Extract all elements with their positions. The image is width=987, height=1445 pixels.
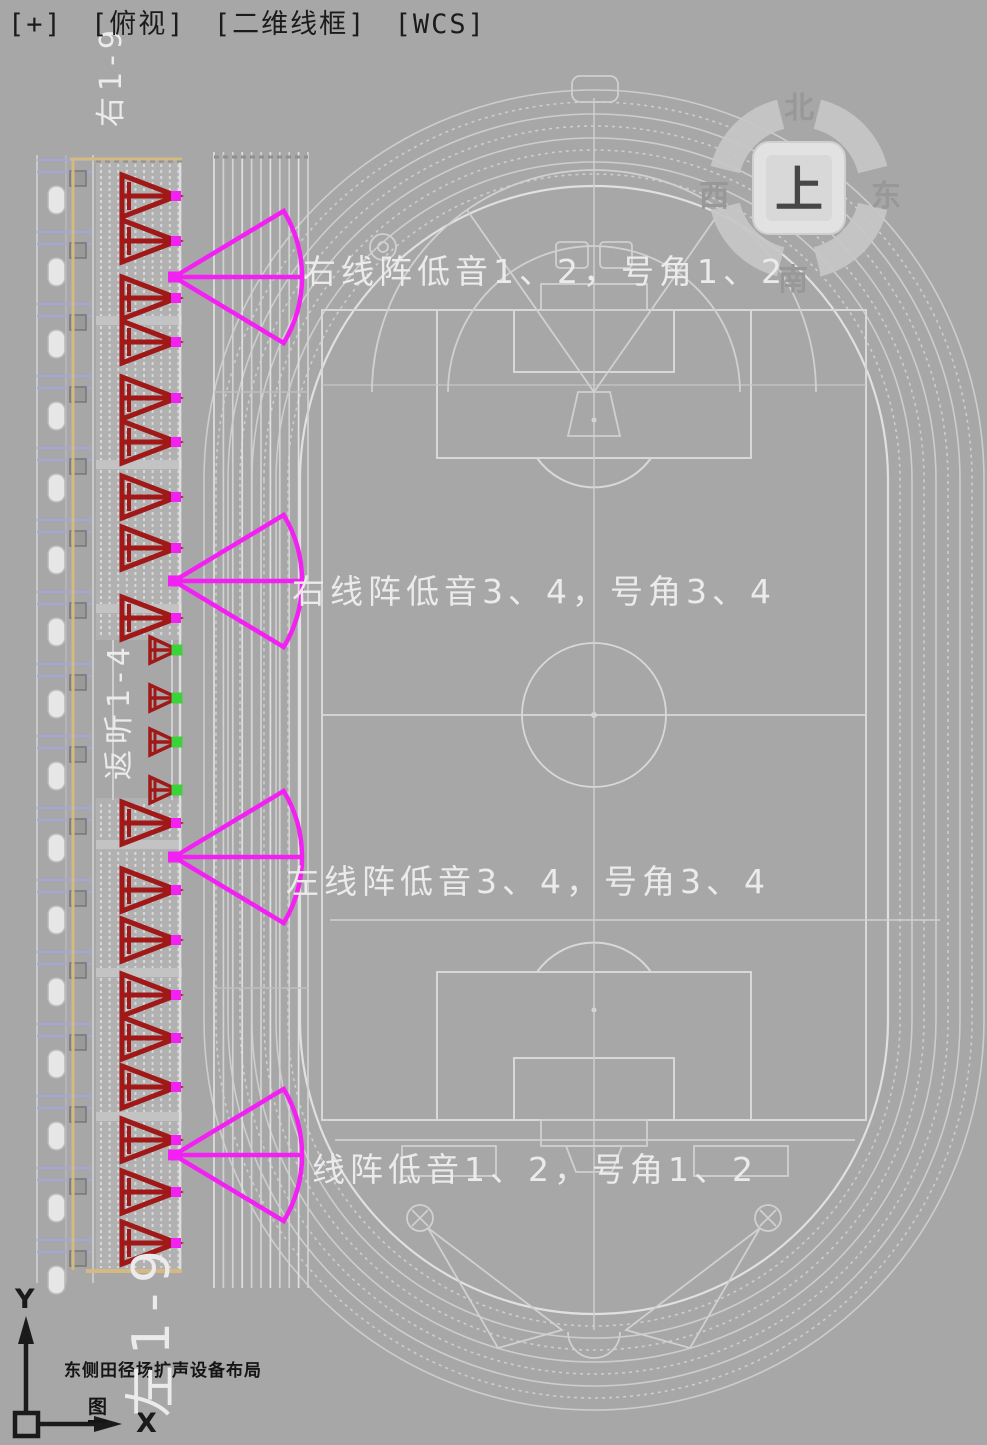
coverage-fan[interactable] <box>174 791 302 923</box>
water-jump <box>572 76 618 102</box>
monitor-tip-dot <box>172 693 183 704</box>
speaker-tip-dot <box>171 293 181 303</box>
speaker-tip-dot <box>171 437 181 447</box>
viewcube-face-label[interactable]: 上 <box>775 162 823 218</box>
speaker-group-label-right[interactable]: 右1-9 <box>97 41 127 127</box>
speaker-group-label-monitor[interactable]: 返听1-4 <box>105 664 135 780</box>
throw-circle-top-inner <box>378 242 388 252</box>
coverage-fan[interactable] <box>174 211 302 343</box>
viewcube-west[interactable]: 西 <box>699 179 729 214</box>
monitor-tip-dot <box>172 737 183 748</box>
stand-walkway-gap <box>96 840 182 849</box>
west-corridor[interactable] <box>37 155 93 1294</box>
speaker-tip-dot <box>171 337 181 347</box>
drawing-canvas[interactable]: 北 西 东 南 上 Y X <box>0 0 987 1445</box>
viewcube-north[interactable]: 北 <box>784 91 814 126</box>
stand-walkway-gap <box>96 968 182 977</box>
viewcube-east[interactable]: 东 <box>871 179 901 214</box>
speaker-tip-dot <box>171 191 181 201</box>
stair-pill <box>48 1266 65 1294</box>
fan-apex-dot[interactable] <box>168 1150 179 1161</box>
stair-pill <box>48 906 65 934</box>
stair-pill <box>48 1050 65 1078</box>
speaker-tip-dot <box>171 990 181 1000</box>
fan-apex-dot[interactable] <box>168 852 179 863</box>
speaker-tip-dot <box>171 935 181 945</box>
coverage-fan[interactable] <box>174 515 302 647</box>
monitor-speakers[interactable] <box>150 637 183 803</box>
stair-pill <box>48 330 65 358</box>
speaker-tip-dot <box>171 885 181 895</box>
sector-line-right <box>594 210 721 392</box>
stand-walkway-gap <box>96 1112 182 1121</box>
fan-apex-dot[interactable] <box>168 576 179 587</box>
fan-apex-dot[interactable] <box>168 272 179 283</box>
stair-pill <box>48 258 65 286</box>
viewport-style-menu[interactable]: [二维线框] <box>214 9 367 40</box>
figure-label[interactable]: 图 <box>88 1392 107 1423</box>
stair-pill <box>48 834 65 862</box>
stair-pill <box>48 474 65 502</box>
fan-label-3[interactable]: 左线阵低音3、4，号角3、4 <box>286 862 770 902</box>
stair-pill <box>48 186 65 214</box>
stair-pill <box>48 546 65 574</box>
sector-line-left <box>467 210 594 392</box>
stair-pill <box>48 618 65 646</box>
speaker-tip-dot <box>171 613 181 623</box>
speaker-tip-dot <box>171 818 181 828</box>
stair-pill <box>48 402 65 430</box>
coverage-fan[interactable] <box>174 1089 302 1221</box>
speaker-tip-dot <box>171 236 181 246</box>
fan-label-4[interactable]: 线阵低音1、2，号角1、2 <box>312 1150 758 1190</box>
fan-label-1[interactable]: 右线阵低音1、2，号角1、2 <box>303 252 787 292</box>
stair-pill <box>48 762 65 790</box>
ucs-origin-square <box>15 1413 38 1436</box>
stair-pill <box>48 1122 65 1150</box>
viewport-controls: [+] [俯视] [二维线框] [WCS] <box>8 2 496 41</box>
viewport-plus-menu[interactable]: [+] <box>8 9 63 40</box>
ucs-y-arrowhead <box>18 1316 34 1344</box>
speaker-tip-dot <box>171 1082 181 1092</box>
throw-circle-bottom-left-cross <box>412 1210 428 1226</box>
speaker-tip-dot <box>171 393 181 403</box>
speaker-tip-dot <box>171 1135 181 1145</box>
speaker-tip-dot <box>171 1187 181 1197</box>
viewport-view-menu[interactable]: [俯视] <box>91 9 186 40</box>
throw-circle-bottom-right-cross <box>760 1210 776 1226</box>
stand-walkway-gap <box>96 460 182 469</box>
ucs-y-label: Y <box>14 1284 35 1315</box>
speaker-tip-dot <box>171 492 181 502</box>
speaker-tip-dot <box>171 1033 181 1043</box>
speaker-tip-dot <box>171 543 181 553</box>
stair-pill <box>48 978 65 1006</box>
fan-label-2[interactable]: 右线阵低音3、4，号角3、4 <box>292 572 776 612</box>
viewport-cs-menu[interactable]: [WCS] <box>395 9 486 40</box>
stair-pill <box>48 690 65 718</box>
stand-walkway-gap <box>96 316 182 325</box>
bottom-center-arc <box>568 1332 620 1358</box>
monitor-tip-dot <box>172 645 183 656</box>
monitor-tip-dot <box>172 785 183 796</box>
stair-pill <box>48 1194 65 1222</box>
speaker-group-label-left[interactable]: 左1-9 <box>124 1247 180 1417</box>
